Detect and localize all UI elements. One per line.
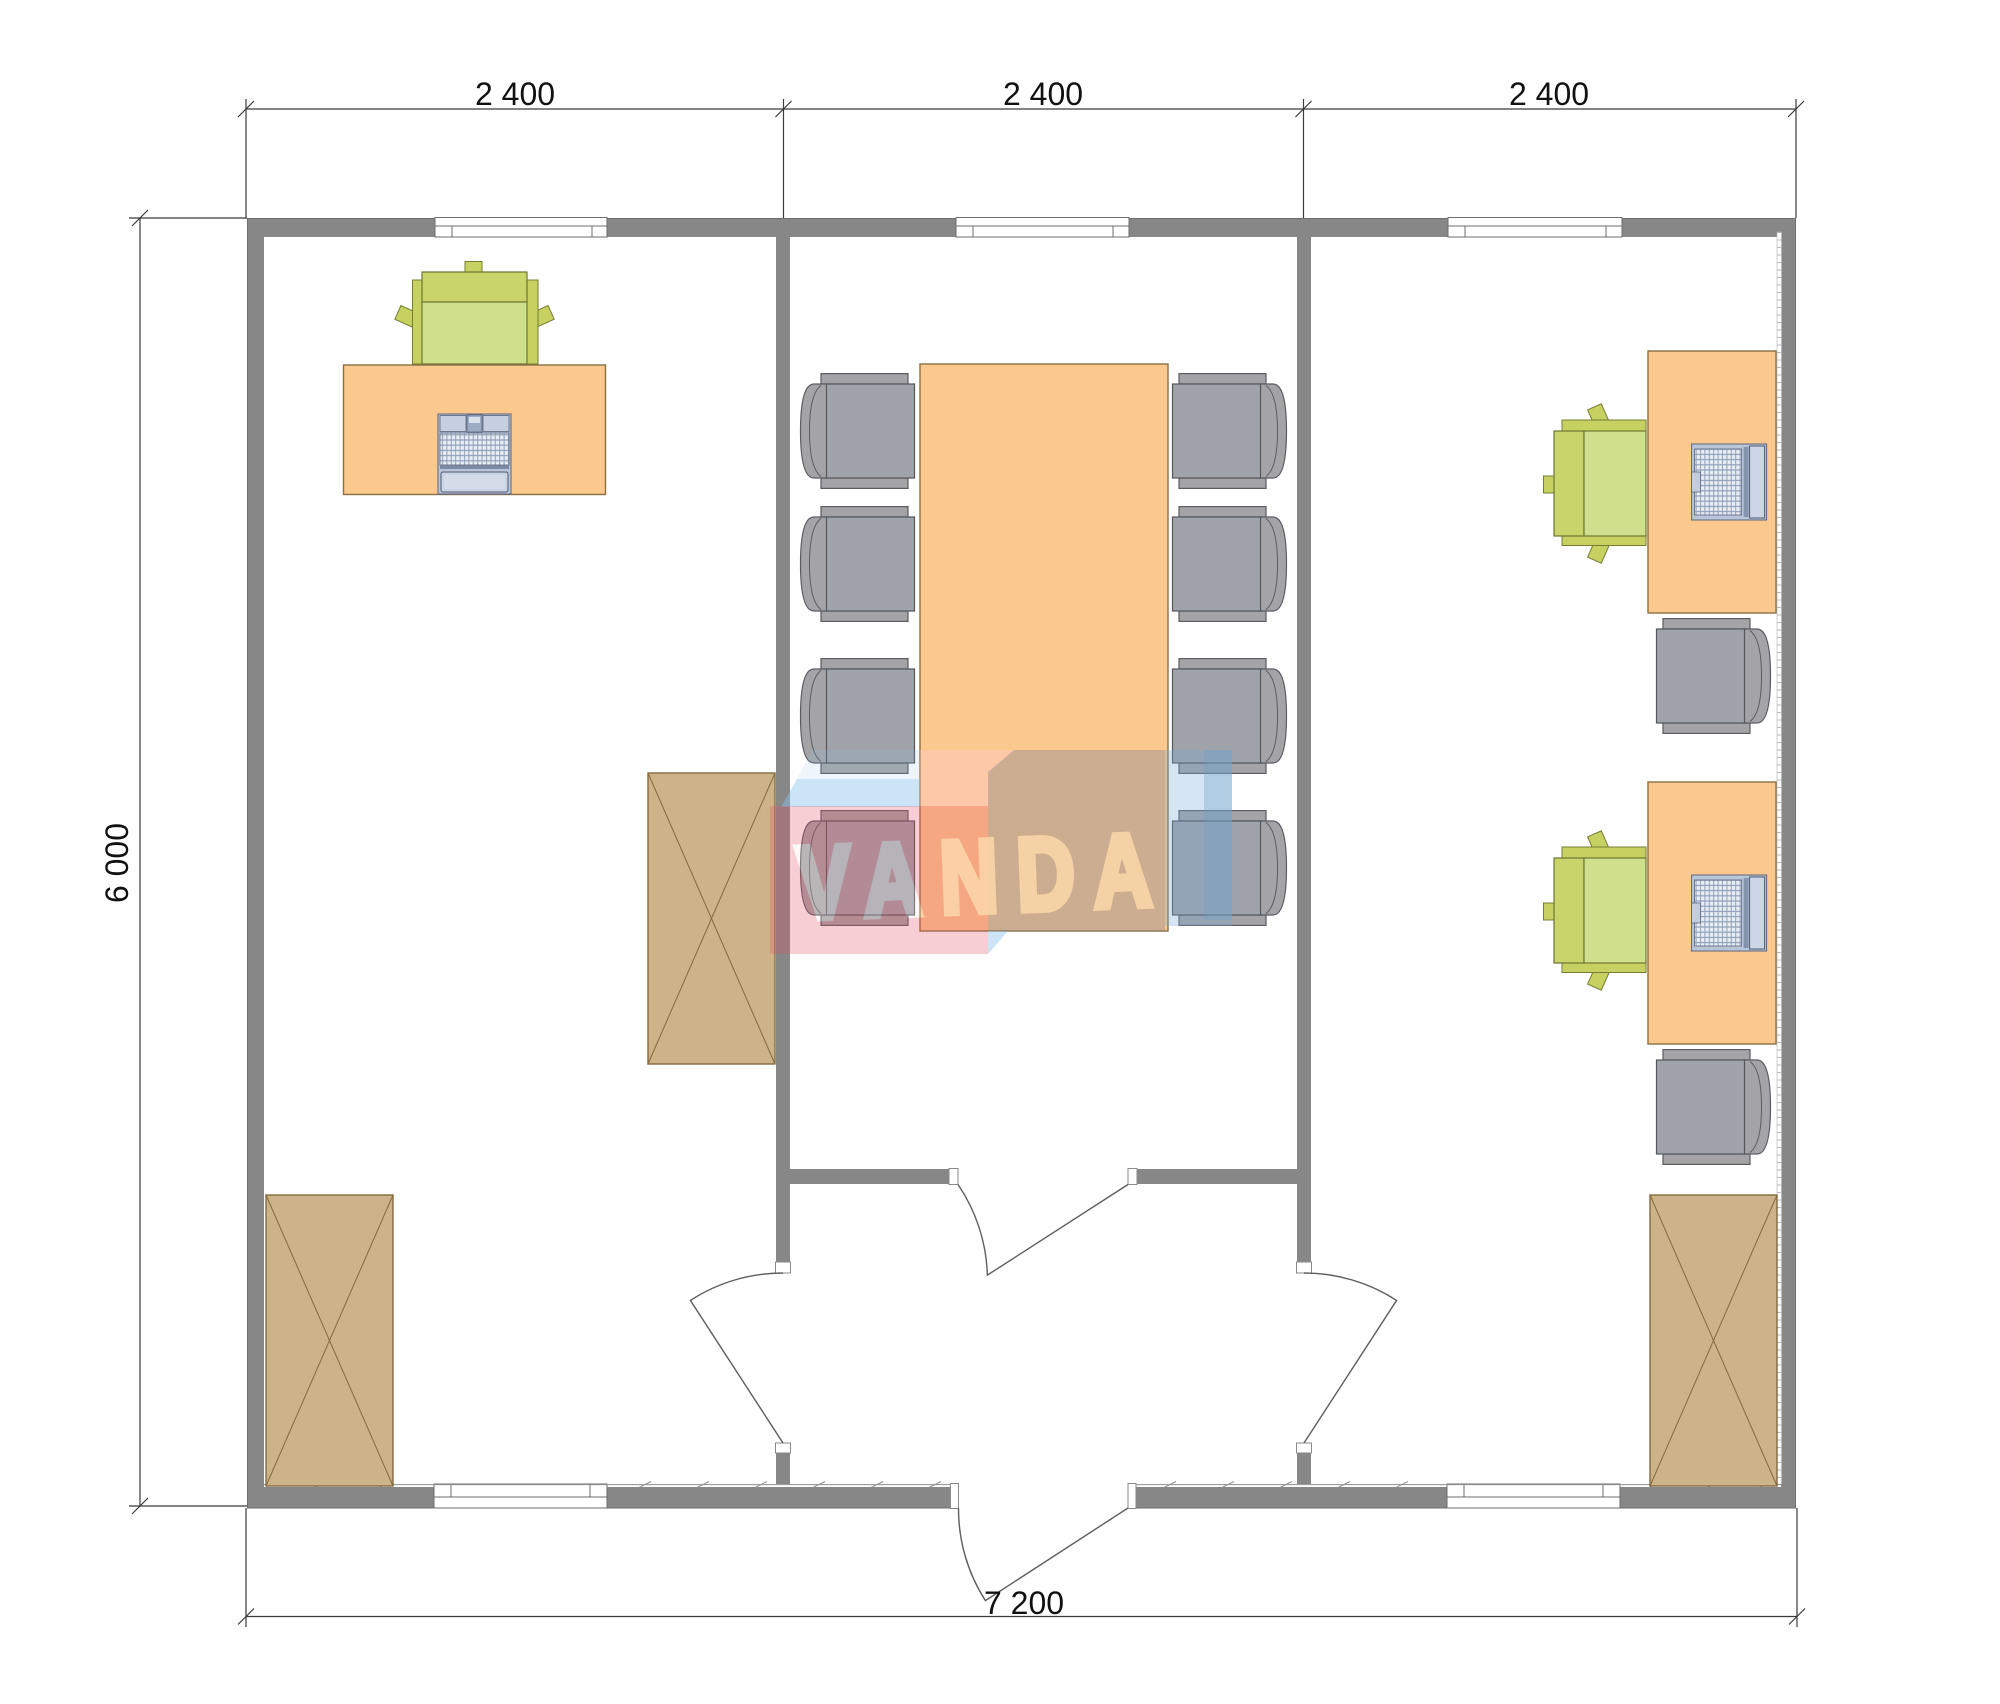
svg-text:6 000: 6 000	[99, 823, 135, 903]
svg-text:2 400: 2 400	[475, 76, 555, 112]
svg-text:7 200: 7 200	[984, 1585, 1064, 1621]
svg-text:VANDA: VANDA	[795, 811, 1172, 941]
svg-text:2 400: 2 400	[1509, 76, 1589, 112]
svg-text:2 400: 2 400	[1003, 76, 1083, 112]
